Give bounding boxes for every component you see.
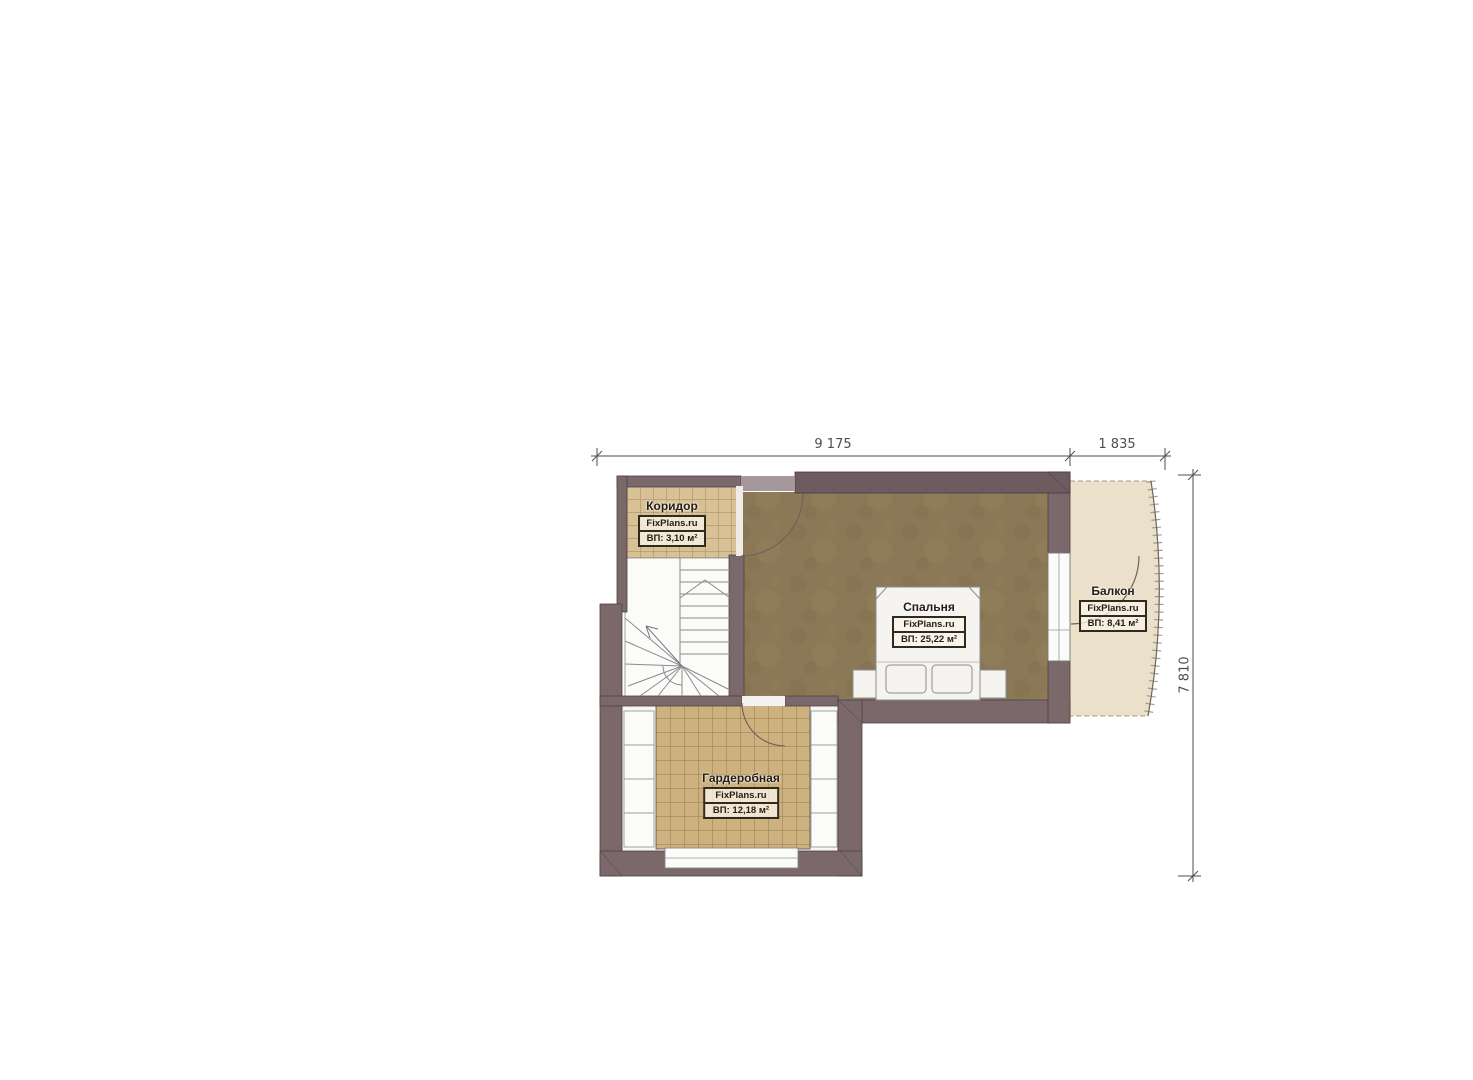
wall-segment <box>617 476 627 612</box>
room-label-spalnya: Спальня FixPlans.ru ВП: 25,22 м² <box>892 601 966 648</box>
wall-segment <box>838 700 862 876</box>
door-threshold <box>742 696 785 706</box>
wall-segment-heavy-top <box>795 472 1070 493</box>
room-label-koridor: Коридор FixPlans.ru ВП: 3,10 м² <box>638 500 706 547</box>
wall-segment <box>729 555 744 702</box>
cabinet <box>811 711 837 745</box>
nightstand-right <box>979 670 1006 698</box>
room-name: Коридор <box>638 500 706 513</box>
cabinet <box>624 779 654 813</box>
room-brand: FixPlans.ru <box>1079 600 1147 617</box>
cabinet <box>624 711 654 745</box>
wall-lintel-over-door <box>741 476 795 491</box>
room-area: ВП: 8,41 м² <box>1079 617 1147 632</box>
room-area: ВП: 3,10 м² <box>638 532 706 547</box>
floor-plan-svg <box>0 0 1473 1080</box>
dimension-label-top-balcony: 1 835 <box>1098 437 1135 452</box>
room-label-garderobnaya: Гардеробная FixPlans.ru ВП: 12,18 м² <box>702 772 780 819</box>
wall-segment <box>1048 661 1070 723</box>
room-area: ВП: 25,22 м² <box>892 633 966 648</box>
room-name: Балкон <box>1079 585 1147 598</box>
cabinet <box>811 745 837 779</box>
room-name: Спальня <box>892 601 966 614</box>
cabinet <box>811 813 837 847</box>
pillow <box>932 665 972 693</box>
door-threshold <box>736 486 743 556</box>
balcony-window-door-assembly <box>1048 553 1070 661</box>
room-brand: FixPlans.ru <box>638 515 706 532</box>
wall-segment <box>600 604 622 876</box>
room-area: ВП: 12,18 м² <box>703 804 779 819</box>
wall-segment <box>617 476 741 487</box>
cabinet <box>811 779 837 813</box>
room-brand: FixPlans.ru <box>892 616 966 633</box>
cabinet <box>624 813 654 847</box>
pillow <box>886 665 926 693</box>
wall-segment <box>838 700 1070 723</box>
room-name: Гардеробная <box>702 772 780 785</box>
dimension-label-top-main: 9 175 <box>814 437 851 452</box>
wall-segment <box>785 696 838 706</box>
wall-segment <box>600 696 742 706</box>
room-label-balkon: Балкон FixPlans.ru ВП: 8,41 м² <box>1079 585 1147 632</box>
wardrobe-window <box>665 848 798 868</box>
cabinet <box>624 745 654 779</box>
stair-room-floor <box>625 558 730 699</box>
dimension-label-right: 7 810 <box>1178 656 1193 693</box>
floor-plan-canvas: Коридор FixPlans.ru ВП: 3,10 м² Спальня … <box>0 0 1473 1080</box>
room-brand: FixPlans.ru <box>703 787 779 804</box>
